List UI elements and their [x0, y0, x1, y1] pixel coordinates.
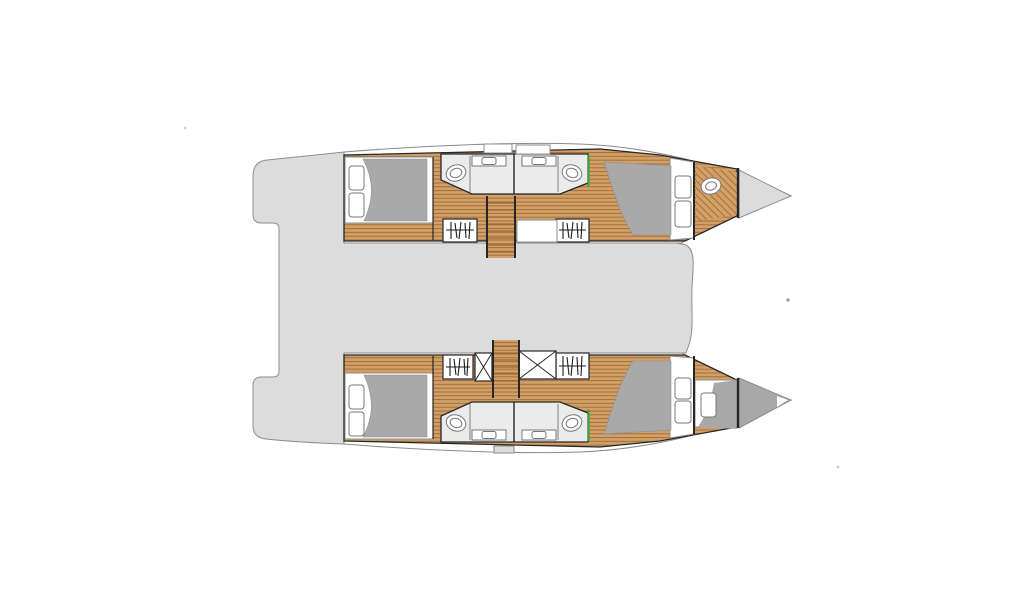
sink-basin [482, 432, 496, 439]
deck-hatch [494, 446, 514, 453]
pillow [349, 412, 364, 436]
upper-mid-cabinet [517, 220, 557, 242]
upper-bathrooms [441, 154, 589, 194]
lower-bathrooms [441, 402, 589, 442]
upper-forepeak-floor [696, 166, 737, 221]
bed-step [675, 176, 691, 198]
upper-stairs [487, 196, 515, 258]
bed-step [675, 201, 691, 227]
catamaran-floor-plan [0, 0, 1024, 600]
bed-step [675, 401, 691, 423]
lower-wardrobe-right [556, 353, 589, 379]
bed-duvet [363, 159, 427, 221]
stray-mark [184, 127, 187, 130]
lower-shower-tray-small [475, 353, 492, 381]
lower-forepeak-storage [695, 380, 737, 429]
sink-basin [532, 158, 546, 165]
sink-basin [482, 158, 496, 165]
pillow [349, 166, 364, 190]
sink-basin [532, 432, 546, 439]
upper-wardrobe-left [443, 219, 477, 242]
bed-duvet [363, 375, 427, 437]
bed-step [675, 378, 691, 399]
floor-plan-canvas [0, 0, 1024, 600]
lower-stairs [493, 340, 519, 398]
forepeak-hatch [701, 393, 716, 417]
upper-hull [344, 143, 791, 258]
forestay-point [786, 298, 789, 301]
lower-shower-tray-large [519, 351, 556, 379]
deck-hatch [484, 144, 512, 153]
upper-wardrobe-right [556, 219, 589, 242]
pillow [349, 385, 364, 409]
lower-hull [344, 340, 791, 453]
stray-mark [837, 466, 840, 469]
pillow [349, 193, 364, 217]
lower-wardrobe-left [443, 355, 473, 379]
upper-bow-tip [739, 170, 791, 218]
deck-hatch [516, 145, 550, 154]
bed-steps-column [670, 158, 694, 240]
